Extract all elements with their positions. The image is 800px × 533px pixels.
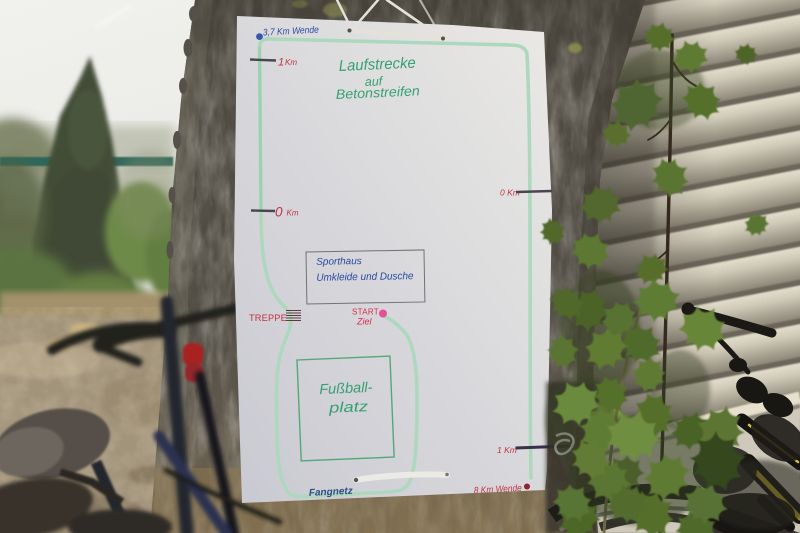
svg-text:Ziel: Ziel — [356, 317, 373, 327]
svg-text:Km: Km — [285, 58, 297, 67]
svg-text:Fußball-: Fußball- — [319, 380, 373, 398]
svg-text:Laufstrecke: Laufstrecke — [338, 55, 416, 75]
svg-text:1 Km: 1 Km — [497, 445, 517, 455]
svg-text:Sporthaus: Sporthaus — [316, 256, 362, 268]
svg-text:0: 0 — [275, 205, 283, 220]
svg-text:Km: Km — [287, 209, 299, 218]
svg-text:Fangnetz: Fangnetz — [309, 486, 353, 499]
svg-text:Umkleide und Dusche: Umkleide und Dusche — [316, 270, 413, 284]
svg-text:TREPPE: TREPPE — [249, 313, 287, 323]
svg-text:START: START — [352, 308, 379, 317]
svg-text:1: 1 — [278, 57, 284, 69]
svg-text:platz: platz — [327, 399, 369, 417]
